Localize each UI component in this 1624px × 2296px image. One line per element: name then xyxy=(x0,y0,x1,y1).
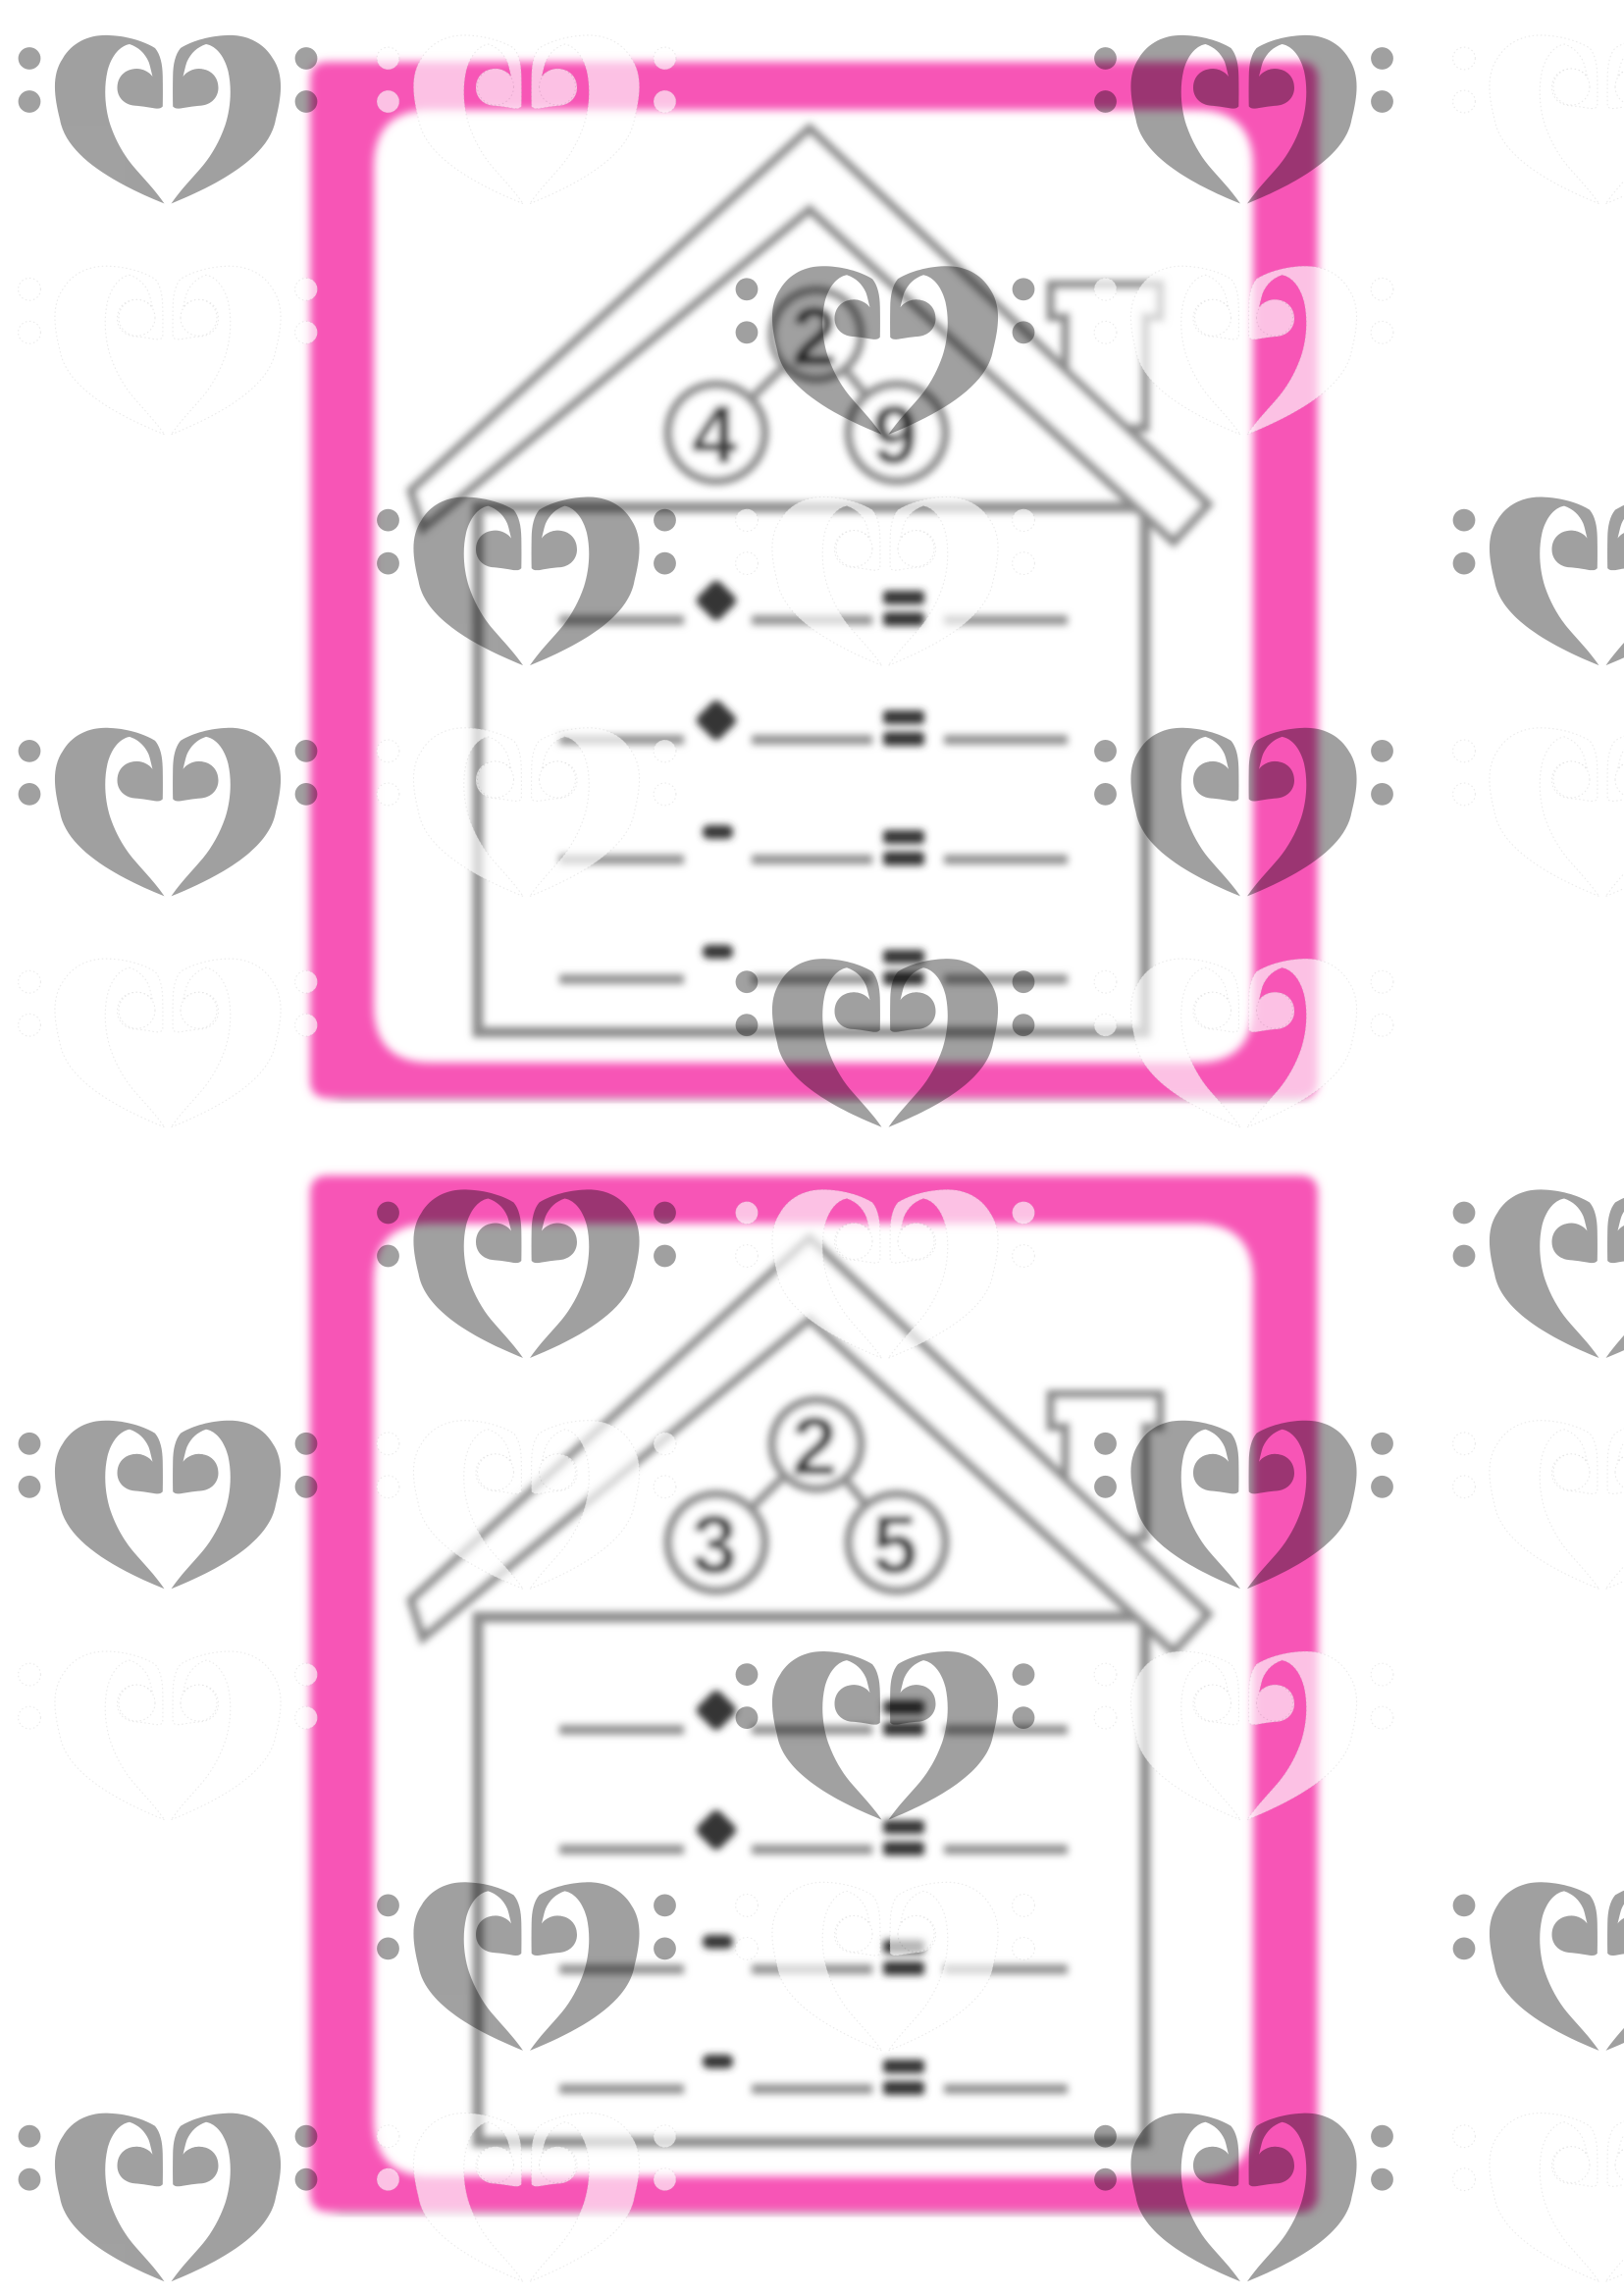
svg-text:4: 4 xyxy=(692,389,738,481)
svg-text:5: 5 xyxy=(872,1498,918,1591)
svg-text:3: 3 xyxy=(692,1498,738,1591)
svg-text:9: 9 xyxy=(872,389,918,481)
svg-text:2: 2 xyxy=(792,1400,838,1492)
